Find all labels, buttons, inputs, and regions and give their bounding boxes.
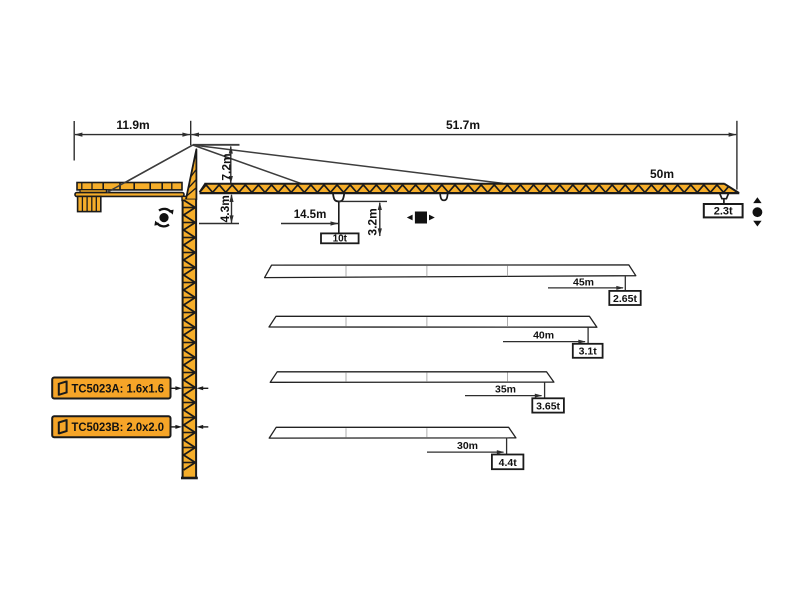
svg-text:TC5023A: 1.6x1.6: TC5023A: 1.6x1.6 [72,381,165,395]
svg-text:35m: 35m [495,384,516,396]
svg-text:3.1t: 3.1t [579,346,598,358]
svg-text:40m: 40m [533,330,554,342]
svg-text:TC5023B: 2.0x2.0: TC5023B: 2.0x2.0 [72,420,165,434]
svg-text:50m: 50m [650,167,674,181]
svg-text:3.65t: 3.65t [536,400,560,412]
svg-text:10t: 10t [333,233,348,244]
svg-text:30m: 30m [457,440,478,452]
svg-text:11.9m: 11.9m [116,118,149,132]
svg-text:4.4t: 4.4t [499,457,518,469]
svg-text:7.2m: 7.2m [220,153,234,180]
svg-text:4.3m: 4.3m [218,195,232,222]
svg-text:3.2m: 3.2m [366,208,380,235]
svg-text:2.65t: 2.65t [613,293,637,305]
svg-text:45m: 45m [573,276,594,288]
svg-text:51.7m: 51.7m [446,118,480,132]
svg-text:2.3t: 2.3t [714,206,733,218]
svg-text:14.5m: 14.5m [294,209,327,221]
